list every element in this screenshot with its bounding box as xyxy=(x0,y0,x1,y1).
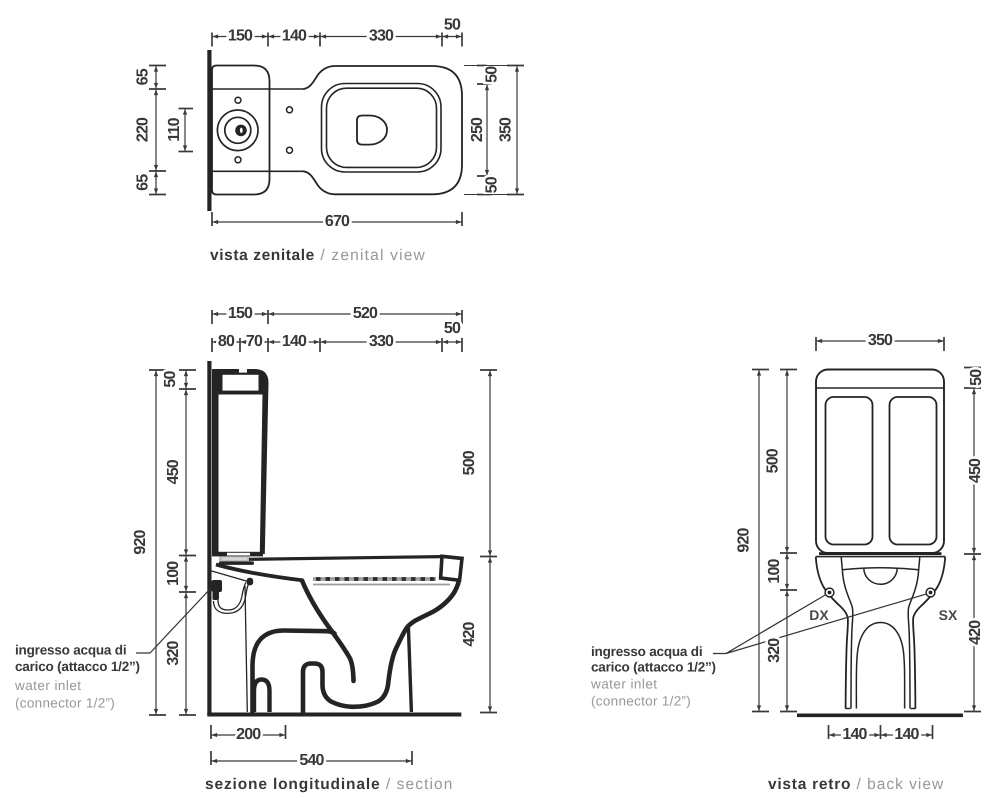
svg-text:DX: DX xyxy=(809,607,829,623)
svg-text:450: 450 xyxy=(967,458,984,483)
svg-text:SX: SX xyxy=(939,607,958,623)
svg-text:(connector 1/2”): (connector 1/2”) xyxy=(15,696,115,711)
svg-text:500: 500 xyxy=(461,450,478,475)
svg-text:150: 150 xyxy=(228,305,253,322)
svg-text:sezione longitudinale / sectio: sezione longitudinale / section xyxy=(205,776,453,793)
svg-text:water inlet: water inlet xyxy=(590,677,657,692)
svg-text:ingresso acqua di: ingresso acqua di xyxy=(15,643,126,658)
svg-text:water inlet: water inlet xyxy=(14,678,81,693)
svg-text:140: 140 xyxy=(842,726,867,743)
svg-text:920: 920 xyxy=(132,529,149,554)
svg-text:vista zenitale / zenital view: vista zenitale / zenital view xyxy=(210,247,426,264)
svg-text:200: 200 xyxy=(236,726,261,743)
svg-text:670: 670 xyxy=(325,213,350,230)
svg-text:65: 65 xyxy=(134,68,151,85)
svg-text:100: 100 xyxy=(766,558,783,583)
svg-text:540: 540 xyxy=(299,752,324,769)
svg-text:220: 220 xyxy=(134,117,151,142)
svg-text:140: 140 xyxy=(894,726,919,743)
svg-text:100: 100 xyxy=(165,561,182,586)
svg-text:ingresso acqua di: ingresso acqua di xyxy=(591,644,702,659)
svg-text:(connector 1/2”): (connector 1/2”) xyxy=(591,694,691,709)
svg-text:350: 350 xyxy=(497,117,514,142)
svg-text:50: 50 xyxy=(162,371,179,388)
svg-text:330: 330 xyxy=(369,333,394,350)
svg-text:320: 320 xyxy=(766,638,783,663)
svg-text:150: 150 xyxy=(228,28,253,45)
svg-text:50: 50 xyxy=(483,176,500,193)
svg-text:70: 70 xyxy=(246,333,263,350)
svg-text:140: 140 xyxy=(282,333,307,350)
svg-text:250: 250 xyxy=(469,117,486,142)
svg-text:50: 50 xyxy=(444,17,461,34)
svg-text:vista retro / back view: vista retro / back view xyxy=(768,776,944,793)
svg-text:110: 110 xyxy=(166,117,183,141)
svg-text:450: 450 xyxy=(165,459,182,484)
svg-text:920: 920 xyxy=(735,527,752,552)
svg-text:65: 65 xyxy=(134,174,151,191)
svg-text:carico (attacco 1/2”): carico (attacco 1/2”) xyxy=(15,659,140,674)
svg-text:140: 140 xyxy=(282,28,307,45)
svg-text:320: 320 xyxy=(165,640,182,665)
svg-text:350: 350 xyxy=(868,332,893,349)
svg-text:carico (attacco 1/2”): carico (attacco 1/2”) xyxy=(591,660,716,675)
svg-text:520: 520 xyxy=(353,305,378,322)
svg-text:420: 420 xyxy=(967,620,984,645)
svg-text:50: 50 xyxy=(444,320,461,337)
svg-text:50: 50 xyxy=(483,66,500,83)
svg-text:500: 500 xyxy=(764,448,781,473)
svg-text:420: 420 xyxy=(461,621,478,646)
svg-text:330: 330 xyxy=(369,28,394,45)
svg-text:80: 80 xyxy=(218,333,235,350)
svg-text:50: 50 xyxy=(968,369,985,386)
